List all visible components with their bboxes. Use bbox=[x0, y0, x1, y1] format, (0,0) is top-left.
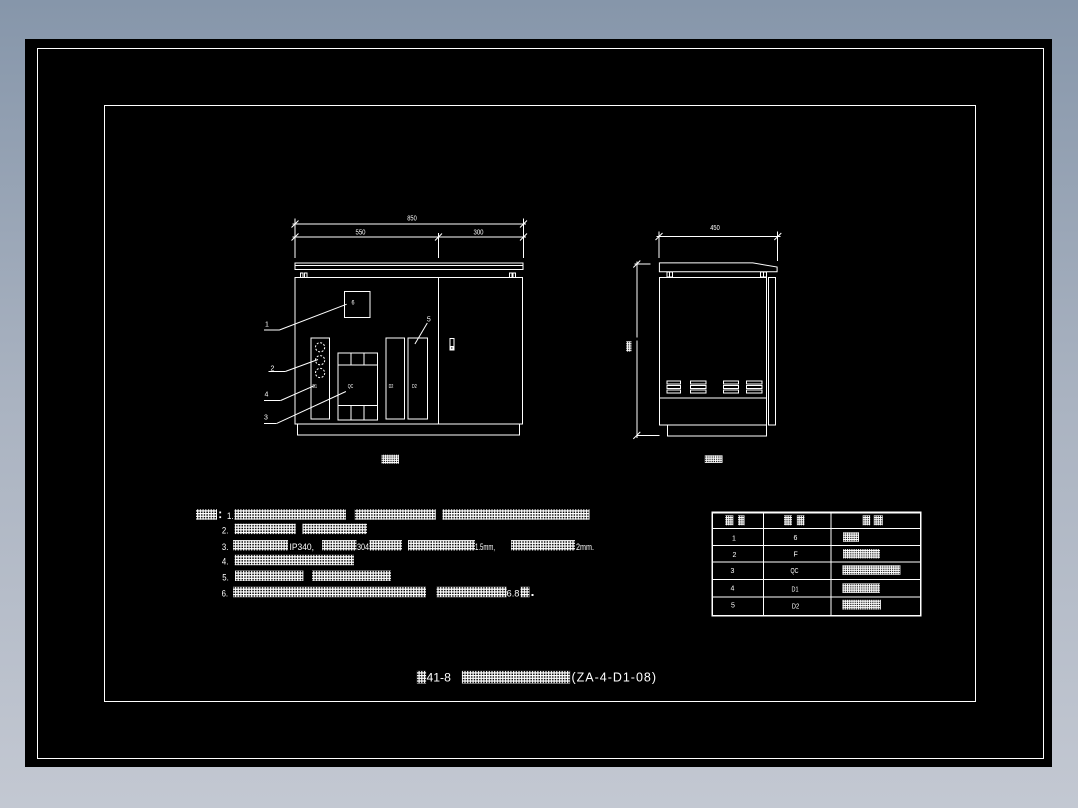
svg-text:6: 6 bbox=[794, 535, 798, 542]
svg-text:2: 2 bbox=[733, 552, 737, 559]
svg-text:300: 300 bbox=[474, 230, 484, 237]
svg-text:1: 1 bbox=[732, 536, 736, 543]
svg-text:304: 304 bbox=[357, 542, 369, 553]
svg-text:6: 6 bbox=[352, 301, 356, 307]
svg-text:6.8: 6.8 bbox=[507, 589, 520, 600]
svg-text:2: 2 bbox=[271, 366, 275, 373]
svg-text:D2: D2 bbox=[792, 604, 800, 611]
svg-text:(ZA-4-D1-08): (ZA-4-D1-08) bbox=[572, 670, 657, 684]
svg-text:5: 5 bbox=[731, 603, 735, 610]
svg-text:3: 3 bbox=[731, 568, 735, 575]
svg-text:1.: 1. bbox=[227, 511, 234, 522]
svg-text:QC: QC bbox=[348, 384, 354, 390]
svg-text:6.: 6. bbox=[222, 589, 229, 600]
svg-text:3.: 3. bbox=[222, 542, 229, 553]
svg-text:850: 850 bbox=[407, 216, 417, 223]
svg-text:2.: 2. bbox=[222, 525, 229, 536]
svg-text:5: 5 bbox=[427, 317, 431, 324]
svg-text:2mm.: 2mm. bbox=[576, 542, 594, 553]
svg-text:4: 4 bbox=[731, 585, 735, 592]
svg-text:D1: D1 bbox=[792, 586, 799, 593]
svg-text:D1: D1 bbox=[313, 384, 318, 390]
svg-text:1: 1 bbox=[265, 322, 269, 329]
svg-text:D2: D2 bbox=[389, 384, 394, 390]
svg-text:450: 450 bbox=[710, 225, 720, 232]
svg-text:550: 550 bbox=[356, 230, 366, 237]
svg-text:3: 3 bbox=[264, 415, 268, 422]
svg-text:IP340,: IP340, bbox=[290, 542, 315, 553]
svg-text:QC: QC bbox=[791, 568, 799, 575]
svg-text:41-8: 41-8 bbox=[427, 670, 452, 684]
svg-text:F: F bbox=[794, 552, 798, 559]
svg-text:1.5mm,: 1.5mm, bbox=[475, 542, 495, 553]
svg-text:4: 4 bbox=[265, 392, 269, 399]
svg-text:D2: D2 bbox=[412, 384, 417, 390]
svg-text:4.: 4. bbox=[222, 557, 229, 568]
svg-text:5.: 5. bbox=[222, 572, 229, 583]
